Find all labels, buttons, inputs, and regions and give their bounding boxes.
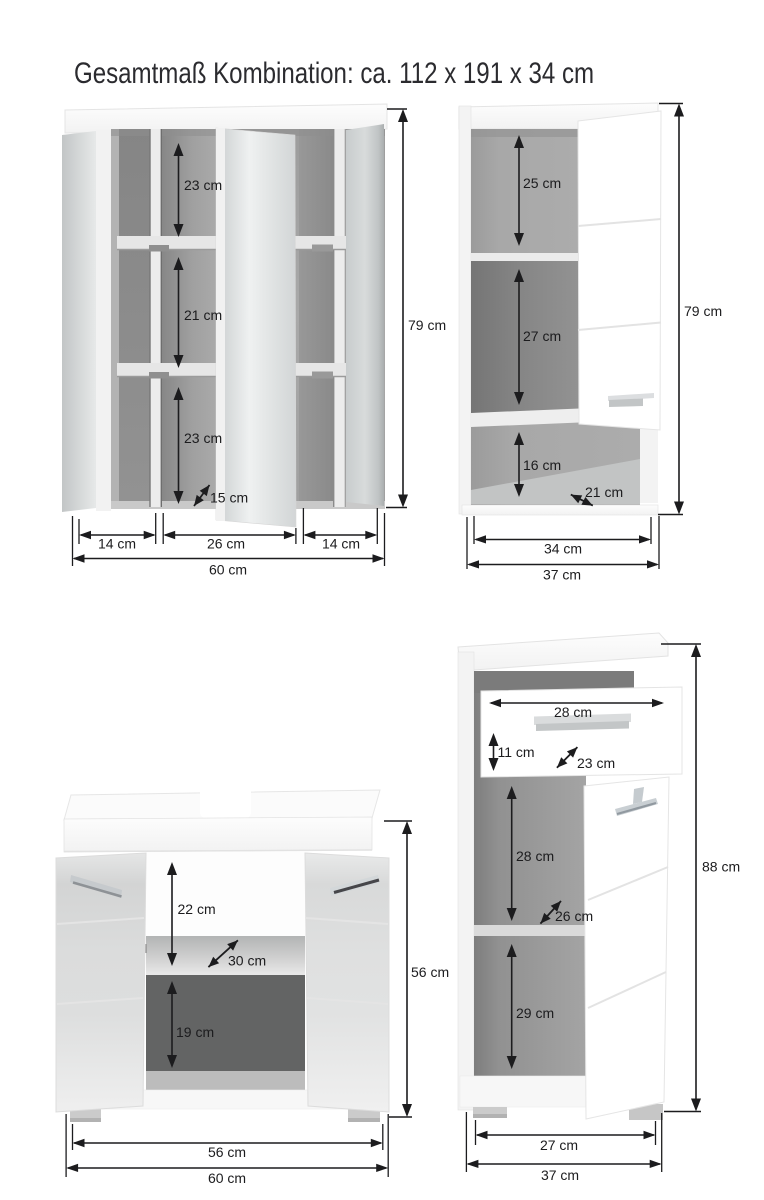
svg-text:14 cm: 14 cm [98, 536, 136, 552]
svg-text:27 cm: 27 cm [523, 328, 561, 344]
svg-text:79 cm: 79 cm [684, 303, 722, 319]
svg-text:37 cm: 37 cm [543, 567, 581, 583]
svg-text:56 cm: 56 cm [208, 1144, 246, 1160]
svg-text:21 cm: 21 cm [585, 484, 623, 500]
svg-text:79 cm: 79 cm [408, 317, 446, 333]
svg-text:21 cm: 21 cm [184, 307, 222, 323]
svg-text:60 cm: 60 cm [208, 1170, 246, 1186]
svg-text:Gesamtmaß Kombination: ca. 112: Gesamtmaß Kombination: ca. 112 x 191 x 3… [74, 55, 594, 89]
svg-text:19 cm: 19 cm [176, 1024, 214, 1040]
svg-text:30 cm: 30 cm [228, 953, 266, 969]
svg-text:22 cm: 22 cm [178, 901, 216, 917]
svg-text:11 cm: 11 cm [498, 744, 535, 760]
svg-text:29 cm: 29 cm [516, 1005, 554, 1021]
svg-text:14 cm: 14 cm [322, 536, 360, 552]
svg-text:16 cm: 16 cm [523, 457, 561, 473]
svg-text:23 cm: 23 cm [577, 755, 615, 771]
svg-text:23 cm: 23 cm [184, 430, 222, 446]
svg-text:28 cm: 28 cm [554, 704, 592, 720]
svg-text:34 cm: 34 cm [544, 541, 582, 557]
svg-text:60 cm: 60 cm [209, 562, 247, 578]
svg-text:37 cm: 37 cm [541, 1167, 579, 1183]
svg-text:28 cm: 28 cm [516, 848, 554, 864]
svg-text:26 cm: 26 cm [207, 536, 245, 552]
svg-text:23 cm: 23 cm [184, 177, 222, 193]
svg-text:25 cm: 25 cm [523, 175, 561, 191]
svg-text:15 cm: 15 cm [210, 490, 248, 506]
svg-text:88 cm: 88 cm [702, 859, 740, 875]
svg-text:26 cm: 26 cm [555, 908, 593, 924]
svg-text:56 cm: 56 cm [411, 964, 449, 980]
svg-text:27 cm: 27 cm [540, 1137, 578, 1153]
